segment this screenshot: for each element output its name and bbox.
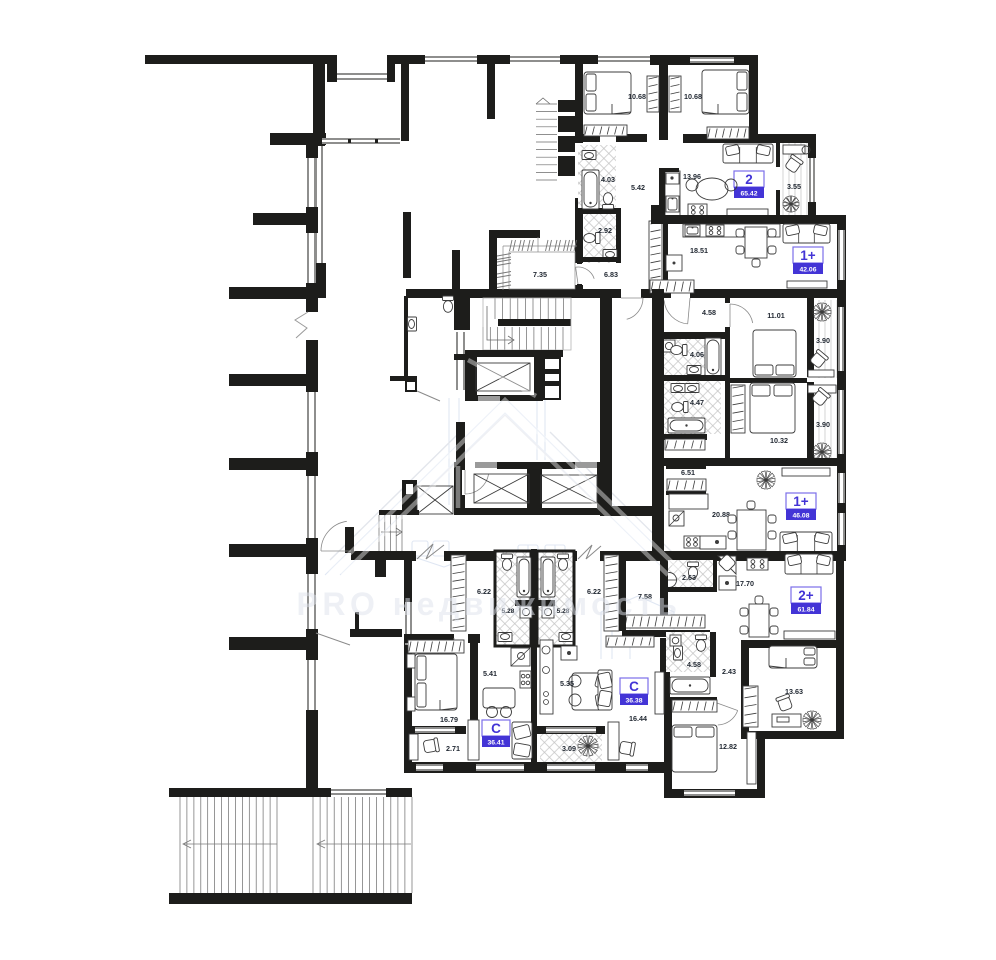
svg-text:3.90: 3.90	[816, 336, 830, 345]
svg-text:2.63: 2.63	[682, 573, 696, 582]
svg-text:36.41: 36.41	[487, 740, 504, 747]
svg-text:4.47: 4.47	[690, 398, 704, 407]
svg-text:2.71: 2.71	[446, 744, 460, 753]
svg-text:2+: 2+	[798, 588, 814, 603]
svg-text:4.06: 4.06	[690, 350, 704, 359]
svg-text:2.92: 2.92	[598, 226, 612, 235]
svg-text:3.09: 3.09	[562, 744, 576, 753]
svg-text:36.38: 36.38	[625, 698, 642, 705]
svg-text:16.79: 16.79	[440, 715, 458, 724]
svg-text:3.90: 3.90	[816, 420, 830, 429]
svg-text:65.42: 65.42	[740, 191, 757, 198]
svg-text:2: 2	[745, 172, 753, 187]
svg-text:2.43: 2.43	[722, 667, 736, 676]
svg-text:C: C	[491, 721, 501, 736]
svg-text:18.51: 18.51	[690, 246, 708, 255]
svg-text:5.35: 5.35	[560, 679, 574, 688]
svg-text:11.01: 11.01	[767, 311, 785, 320]
svg-text:4.03: 4.03	[601, 175, 615, 184]
svg-text:5.41: 5.41	[483, 669, 497, 678]
svg-text:17.70: 17.70	[736, 579, 754, 588]
svg-text:6.51: 6.51	[681, 468, 695, 477]
svg-text:61.84: 61.84	[797, 607, 814, 614]
svg-text:4.58: 4.58	[687, 660, 701, 669]
svg-text:3.55: 3.55	[787, 182, 801, 191]
svg-text:10.68: 10.68	[684, 92, 702, 101]
svg-text:1+: 1+	[800, 248, 816, 263]
svg-text:1+: 1+	[793, 494, 809, 509]
svg-text:PRO недвижимость: PRO недвижимость	[297, 586, 682, 622]
svg-text:5.42: 5.42	[631, 183, 645, 192]
svg-text:4.58: 4.58	[702, 308, 716, 317]
svg-text:13.63: 13.63	[785, 687, 803, 696]
svg-text:10.32: 10.32	[770, 436, 788, 445]
svg-text:6.83: 6.83	[604, 270, 618, 279]
svg-text:7.35: 7.35	[533, 270, 547, 279]
svg-text:10.68: 10.68	[628, 92, 646, 101]
svg-text:42.06: 42.06	[799, 267, 816, 274]
svg-text:16.44: 16.44	[629, 714, 647, 723]
svg-text:20.88: 20.88	[712, 510, 730, 519]
svg-text:C: C	[629, 679, 639, 694]
svg-text:46.08: 46.08	[792, 513, 809, 520]
svg-text:13.96: 13.96	[683, 172, 701, 181]
svg-text:12.82: 12.82	[719, 742, 737, 751]
